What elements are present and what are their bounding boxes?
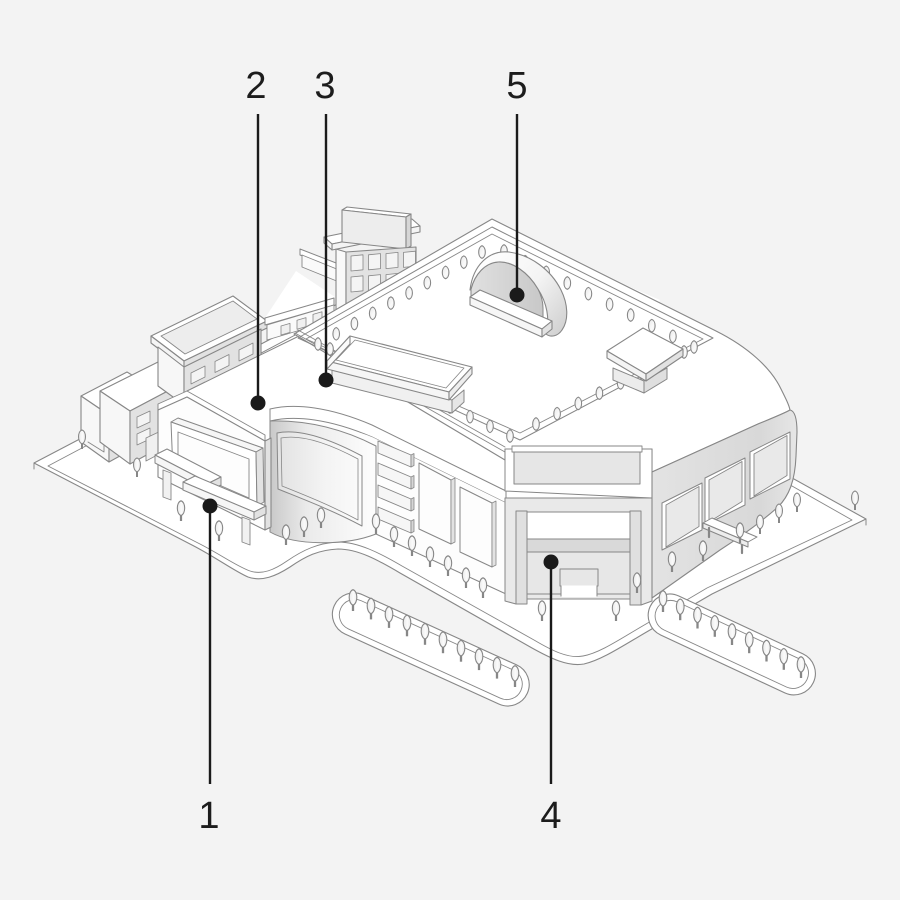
svg-text:2: 2 [245, 65, 266, 107]
svg-text:4: 4 [540, 795, 561, 837]
svg-text:3: 3 [314, 65, 335, 107]
svg-text:5: 5 [506, 65, 527, 107]
svg-text:1: 1 [198, 795, 219, 837]
